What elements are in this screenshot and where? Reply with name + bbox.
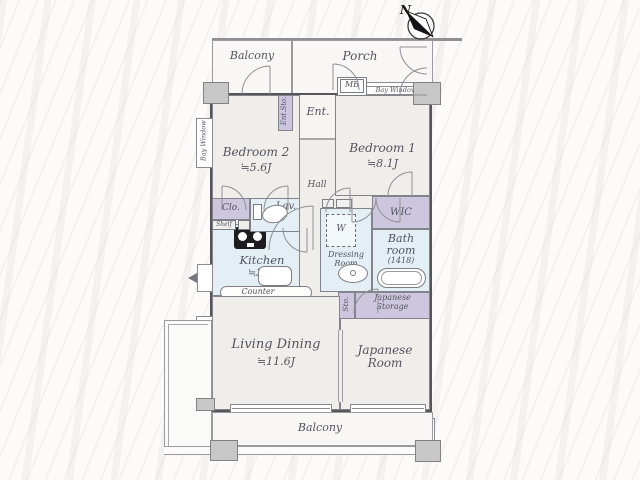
door-arcs — [0, 0, 640, 480]
compass-icon: N — [388, 0, 458, 50]
compass-north-label: N — [399, 3, 412, 17]
floor-plan: Balcony Porch Bedroom 2 ≒5.6J Bedroom 1 … — [0, 0, 640, 480]
